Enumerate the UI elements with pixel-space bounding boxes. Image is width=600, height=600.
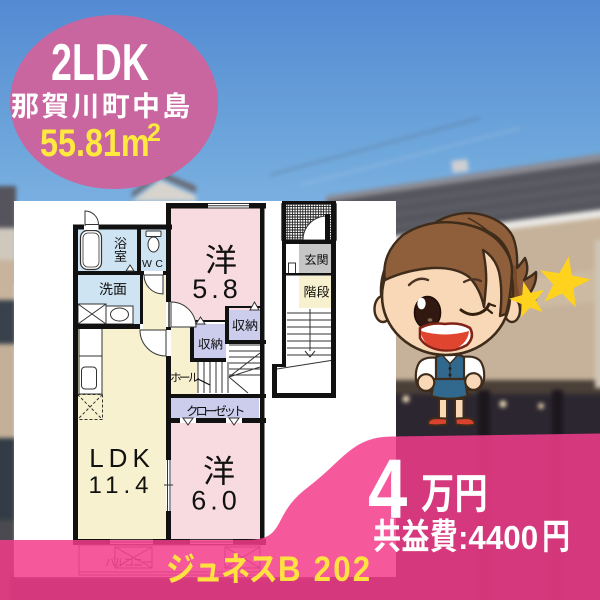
svg-text:2LDK: 2LDK: [51, 33, 149, 92]
svg-text::4400: :4400: [458, 519, 538, 556]
svg-text:4: 4: [368, 443, 407, 536]
svg-text:B 202: B 202: [278, 550, 372, 589]
svg-text:55.81m: 55.81m: [40, 121, 150, 164]
svg-text:2: 2: [147, 119, 161, 147]
